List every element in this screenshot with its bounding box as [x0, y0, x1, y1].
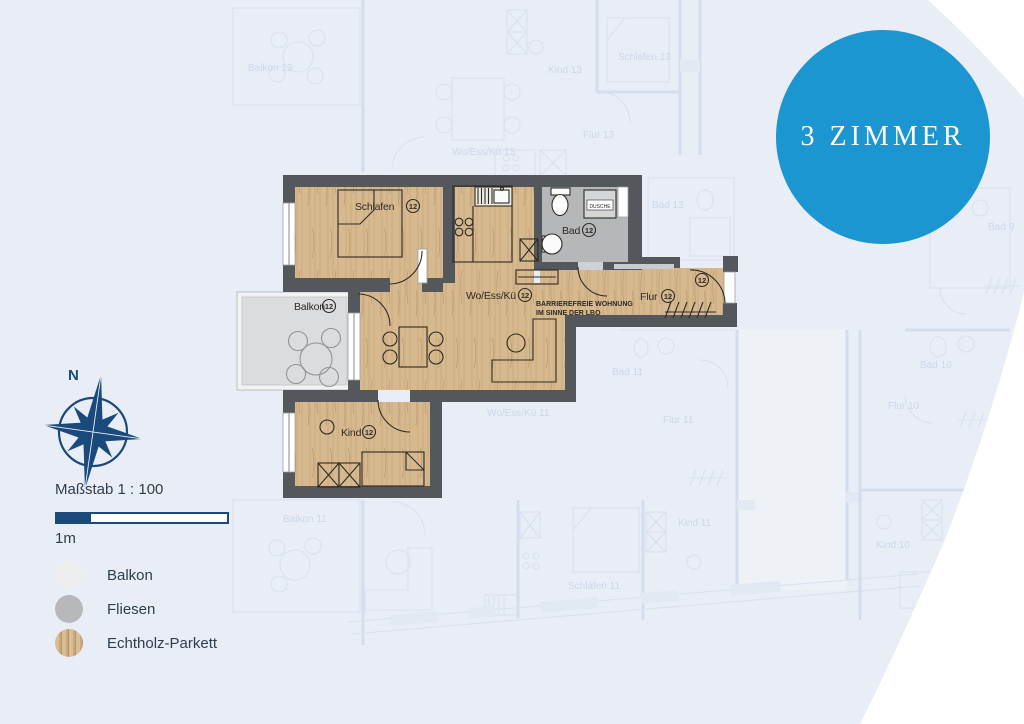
- floorplan-page: Balkon 13 Kind 13 Schlafen 13 Wo/Ess/Kü …: [0, 0, 1024, 724]
- svg-text:12: 12: [409, 202, 417, 211]
- window-bad: [618, 187, 628, 217]
- svg-text:12: 12: [664, 292, 672, 301]
- legend-item-fliesen: Fliesen: [55, 595, 217, 623]
- room-label-flur: Flur 12: [640, 290, 675, 304]
- legend-item-parkett: Echtholz-Parkett: [55, 629, 217, 657]
- svg-text:Wo/Ess/Kü: Wo/Ess/Kü: [466, 290, 516, 302]
- legend-item-balkon: Balkon: [55, 561, 217, 589]
- svg-text:12: 12: [698, 276, 706, 285]
- legend-label: Echtholz-Parkett: [107, 635, 217, 652]
- room-label-woessku: Wo/Ess/Kü 12: [466, 289, 532, 303]
- door-leaf-schlafen: [418, 249, 427, 283]
- svg-text:Balkon: Balkon: [294, 301, 325, 313]
- svg-text:IM SINNE DER LBO: IM SINNE DER LBO: [536, 310, 601, 317]
- window-flur: [724, 272, 735, 303]
- scale-caption: Maßstab 1 : 100: [55, 481, 163, 498]
- parquet-swatch-icon: [55, 629, 83, 657]
- svg-text:BARRIEREFREIE WOHNUNG: BARRIEREFREIE WOHNUNG: [536, 301, 633, 308]
- legend-label: Fliesen: [107, 601, 155, 618]
- room-label-balkon: Balkon 12: [294, 300, 336, 314]
- room-count-badge: 3 ZIMMER: [776, 30, 990, 244]
- compass-north-label: N: [68, 367, 79, 384]
- badge-label: 3 ZIMMER: [801, 121, 966, 153]
- sill-flur: [614, 264, 674, 269]
- scale-unit-label: 1m: [55, 530, 76, 547]
- svg-text:Schlafen: Schlafen: [355, 201, 395, 213]
- svg-text:12: 12: [325, 302, 333, 311]
- scale-bar: [55, 512, 229, 524]
- room-label-kind: Kind 12: [341, 426, 376, 440]
- legend-label: Balkon: [107, 567, 153, 584]
- room-label-bad: Bad 12: [562, 224, 596, 238]
- svg-text:12: 12: [521, 291, 529, 300]
- threshold-bad: [578, 262, 603, 270]
- shower-label: DUSCHE: [589, 204, 611, 210]
- legend: Balkon Fliesen Echtholz-Parkett: [55, 561, 217, 663]
- sink-basin-icon: [494, 190, 509, 203]
- svg-text:12: 12: [365, 428, 373, 437]
- svg-text:Flur: Flur: [640, 291, 658, 303]
- compass-rose-icon: N: [40, 360, 160, 495]
- sink-icon: [542, 234, 562, 254]
- tiles-swatch-icon: [55, 595, 83, 623]
- balcony-swatch-icon: [55, 561, 83, 589]
- svg-text:Kind: Kind: [341, 427, 362, 439]
- svg-text:12: 12: [585, 226, 593, 235]
- svg-text:Bad: Bad: [562, 225, 580, 237]
- room-label-schlafen: Schlafen 12: [355, 200, 420, 214]
- scale-bar-fill: [57, 514, 91, 522]
